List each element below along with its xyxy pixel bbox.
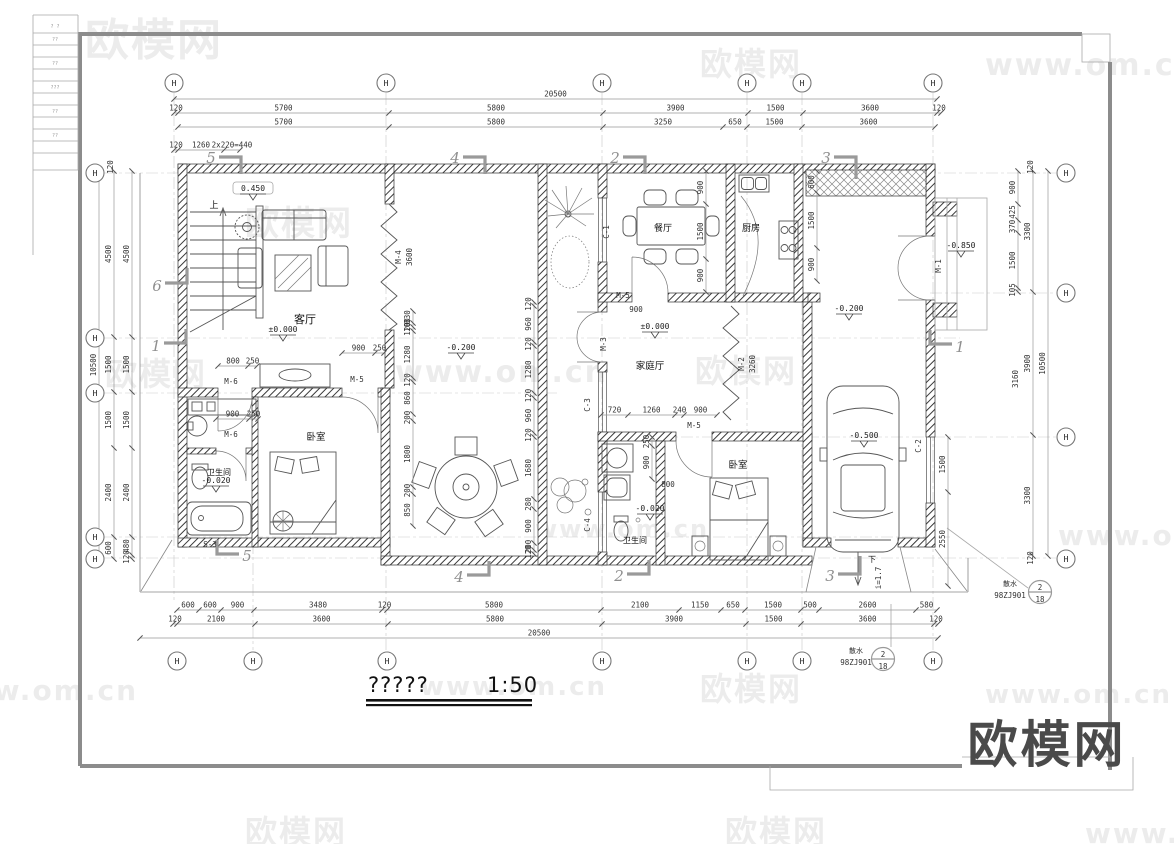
pillow [300, 457, 319, 474]
dimension-text: 900 [231, 601, 245, 610]
dimension-text: 120 [378, 601, 392, 610]
dimension-text: 250 [373, 344, 387, 353]
dimension-text: 900 [807, 257, 816, 271]
dimension-text: 650 [728, 118, 742, 127]
dimension-text: 10500 [1038, 352, 1047, 375]
label-text: 散水 [1003, 579, 1017, 588]
pillow [712, 481, 732, 499]
chair [676, 249, 698, 264]
dimension-text: 1500 [104, 410, 113, 429]
label-text: 120 [1026, 160, 1035, 174]
axis-bubble-label: H [745, 79, 750, 88]
label-text: M-1 [934, 259, 943, 273]
level-value: -0.200 [835, 304, 864, 313]
dimension-text: 20500 [544, 90, 567, 99]
axis-bubble-label: H [1064, 289, 1069, 298]
dimension-text: 900 [642, 455, 651, 469]
label-text: S-3 [203, 540, 217, 549]
dimension-text: 370 [1008, 219, 1017, 233]
dimension-text: 3300 [1023, 486, 1032, 505]
dimension-text: 1260 [192, 141, 211, 150]
axis-bubble-label: H [175, 657, 180, 666]
annotation-layer: 2050012057005800390015003600120570058003… [50, 24, 1075, 671]
label-text: ?? [52, 61, 58, 67]
label-text: ??? [50, 85, 59, 91]
label-text: 98ZJ901 [994, 591, 1026, 600]
dimension-text: 1500 [122, 410, 131, 429]
dimension-text: 3600 [861, 104, 880, 113]
axis-bubble-label: H [800, 657, 805, 666]
dimension-text: 860 [403, 391, 412, 405]
axis-bubble-label: H [1064, 555, 1069, 564]
label-text: M-5 [350, 375, 364, 384]
label-text: 下 [868, 555, 876, 564]
chair [706, 216, 719, 236]
dimension-text: 4500 [104, 244, 113, 263]
dimension-text: 3900 [666, 104, 685, 113]
nightstand [770, 536, 786, 556]
label-text: 3260 [748, 354, 757, 373]
dimension-text: 1500 [807, 211, 816, 230]
level-flag [836, 314, 862, 320]
axis-bubble-label: H [800, 79, 805, 88]
label-text: 18 [878, 662, 888, 671]
level-value: -0.500 [850, 431, 879, 440]
label-text: 餐厅 [654, 222, 672, 234]
level-value: ±0.000 [641, 322, 670, 331]
label-text: 2 [881, 650, 886, 659]
label-text: 卧室 [306, 431, 325, 443]
door-m5-dining [632, 257, 668, 293]
dimension-text: 120 [929, 615, 943, 624]
dimension-text: 120 [524, 297, 533, 311]
porch-pier [933, 202, 957, 216]
watermark-text: www.om.cn [985, 48, 1174, 83]
dimension-text: 1800 [403, 444, 412, 463]
svg-text:3: 3 [825, 567, 835, 585]
dimension-text: 650 [726, 601, 740, 610]
label-text: M-5 [687, 421, 701, 430]
dimension-text: 1500 [104, 355, 113, 374]
level-value: -0.020 [202, 476, 231, 485]
dimension-text: 250 [642, 434, 651, 448]
dimension-text: 600 [104, 541, 113, 555]
dimension-text: 1150 [691, 601, 710, 610]
axis-bubble-label: H [93, 555, 98, 564]
dimension-text: 1680 [524, 458, 533, 477]
level-value: -0.200 [447, 343, 476, 352]
level-flag [948, 251, 974, 257]
floor-plan-canvas: 欧模网欧模网www.om.cn欧模网欧模网www.om.cn欧模网www.om.… [0, 0, 1174, 844]
axis-bubble-label: H [251, 657, 256, 666]
kitchen-furniture [739, 175, 798, 296]
watermark-text: 欧模网 [725, 813, 827, 844]
dimension-text: 5800 [485, 601, 504, 610]
mirror [899, 448, 906, 461]
chair [623, 216, 636, 236]
label-text: C-3 [583, 398, 592, 412]
section-marker: 3 [825, 556, 860, 585]
dimension-text: 1500 [766, 104, 785, 113]
dimension-text: 20500 [528, 629, 551, 638]
dimension-text: 900 [226, 410, 240, 419]
stool [427, 507, 455, 534]
stool [455, 437, 477, 455]
axis-bubble-label: H [600, 657, 605, 666]
label-text: 2 [1038, 583, 1043, 592]
dimension-text: 2600 [858, 601, 877, 610]
dimension-text: 3600 [859, 118, 878, 127]
axis-bubble-label: H [931, 79, 936, 88]
basin [187, 416, 207, 436]
label-text: i=1.7 [874, 567, 883, 590]
label-text: 120 [106, 160, 115, 174]
axis-bubble-label: H [1064, 169, 1069, 178]
dimension-text: 800 [226, 357, 240, 366]
label-text: 98ZJ901 [840, 658, 872, 667]
folding-door-m4 [381, 204, 397, 330]
tv-cabinet [260, 364, 330, 387]
dimension-text: 5700 [274, 118, 293, 127]
dimension-text: 105 [1008, 283, 1017, 297]
plants [545, 186, 594, 515]
label-text: M-3 [599, 337, 608, 351]
dimension-text: 5800 [487, 118, 506, 127]
dimension-text: 240 [673, 406, 687, 415]
label-text: 900 [629, 305, 643, 314]
chair [644, 190, 666, 205]
dimension-text: 600 [807, 175, 816, 189]
label-text: M-6 [224, 430, 238, 439]
label-text: 卫生间 [623, 535, 647, 545]
label-text: ?? [52, 133, 58, 139]
cad-drawing-page: 欧模网欧模网www.om.cn欧模网欧模网www.om.cn欧模网www.om.… [0, 0, 1174, 844]
watermark-text: www.om.cn [985, 680, 1172, 710]
dimension-text: 4500 [122, 244, 131, 263]
dimension-text: 3900 [1023, 354, 1032, 373]
label-text: C-2 [914, 439, 923, 453]
label-text: ?? [52, 109, 58, 115]
watermark-text: 欧模网 [695, 352, 797, 390]
dimension-text: 900 [1008, 180, 1017, 194]
dimension-text: 2100 [631, 601, 650, 610]
dimension-text: 2550 [938, 529, 947, 548]
dimension-text: 120 [169, 104, 183, 113]
watermark-text: 欧模网 [105, 355, 207, 393]
label-text: C-4 [583, 518, 592, 532]
label-text: 散水 [849, 646, 863, 655]
dimension-text: 5800 [486, 615, 505, 624]
dimension-text: 500 [803, 601, 817, 610]
dimension-text: 900 [696, 180, 705, 194]
watermark-text: 欧模网 [245, 813, 347, 844]
tv [279, 369, 311, 381]
door-m5-bedroom [676, 441, 712, 477]
level-value: -0.020 [636, 504, 665, 513]
dimension-text: 1500 [696, 222, 705, 241]
dimension-text: 200 [403, 483, 412, 497]
dimension-text: 120 [403, 322, 412, 336]
stool [475, 509, 503, 536]
watermark-text: www.om.cn [1058, 519, 1174, 552]
bedroom-left-furniture [270, 452, 336, 534]
dimension-text: 900 [696, 268, 705, 282]
dimension-text: 120 [169, 141, 183, 150]
svg-text:5: 5 [242, 547, 252, 565]
pillow [735, 481, 755, 499]
axis-bubble-label: H [931, 657, 936, 666]
dimension-text: 120 [932, 104, 946, 113]
watermark-text: 欧模网 [700, 670, 802, 708]
dimension-text: 3900 [665, 615, 684, 624]
door-m5-living [342, 397, 378, 433]
washer [604, 475, 630, 500]
level-flag [851, 441, 877, 447]
label-text: 厨房 [742, 222, 760, 234]
label-text: 3600 [405, 247, 414, 266]
dimension-text: 1280 [403, 345, 412, 364]
axis-bubble-label: H [1064, 433, 1069, 442]
level-value: ±0.000 [269, 325, 298, 334]
dimension-text: 250 [247, 410, 261, 419]
watermark-text: 欧模网 [85, 15, 223, 66]
dimension-text: 10500 [89, 353, 98, 376]
label-text: 3160 [1011, 369, 1020, 388]
dimension-text: 120 [524, 337, 533, 351]
dimension-text: 2100 [207, 615, 226, 624]
dimension-text: 580 [920, 601, 934, 610]
basin [607, 448, 627, 468]
title-underline-2 [366, 704, 532, 706]
label-text: ? ? [50, 24, 59, 30]
dimension-text: 5800 [487, 104, 506, 113]
watermark-text: www.om.cn [0, 674, 138, 707]
plan-title: ????? [368, 673, 429, 697]
dimension-text: 720 [608, 406, 622, 415]
armchair [318, 246, 348, 286]
svg-text:6: 6 [152, 277, 162, 295]
level-value: 0.450 [241, 184, 265, 193]
axis-bubble-label: H [745, 657, 750, 666]
dimension-text: 120 [524, 388, 533, 402]
dimension-text: 1500 [765, 118, 784, 127]
svg-text:2: 2 [613, 567, 624, 585]
dimension-text: 600 [181, 601, 195, 610]
dimension-text: 3300 [1023, 222, 1032, 241]
axis-bubble-label: H [93, 169, 98, 178]
door-m1 [898, 236, 930, 300]
svg-text:4: 4 [449, 149, 460, 167]
label-text: M-6 [224, 377, 238, 386]
stool [494, 460, 518, 487]
dimension-text: 1500 [122, 355, 131, 374]
svg-text:5: 5 [206, 149, 216, 167]
level-value: -0.850 [947, 241, 976, 250]
svg-text:1: 1 [151, 337, 161, 355]
bed [710, 478, 768, 560]
courtyard-table [412, 437, 518, 537]
stool [412, 462, 436, 489]
label-text: 上 [209, 200, 218, 211]
site-logo: 欧模网 [968, 716, 1127, 774]
dimension-text: 850 [403, 503, 412, 517]
dimension-text: 900 [694, 406, 708, 415]
dimension-text: 120 [524, 545, 533, 559]
dimension-text: 425 [1008, 205, 1017, 219]
counter-curve [741, 196, 758, 296]
dimension-text: 1500 [764, 601, 783, 610]
dimension-text: 1500 [764, 615, 783, 624]
level-flag [642, 332, 668, 338]
dimension-text: 1260 [642, 406, 661, 415]
dimension-text: 960 [524, 408, 533, 422]
axis-bubble-label: H [93, 389, 98, 398]
title-underline [366, 699, 532, 702]
svg-text:3: 3 [821, 149, 831, 167]
dimension-text: 5700 [274, 104, 293, 113]
axis-bubble-label: H [600, 79, 605, 88]
dimension-text: 2400 [122, 483, 131, 502]
dimension-text: 2400 [104, 483, 113, 502]
dimension-text: 900 [524, 519, 533, 533]
axis-bubble-label: H [172, 79, 177, 88]
label-text: 客厅 [294, 312, 316, 326]
dimension-text: 1280 [524, 360, 533, 379]
dimension-text: 3250 [654, 118, 673, 127]
dimension-text: 3600 [312, 615, 331, 624]
planter-glass-band [806, 170, 926, 196]
dimension-text: 120 [122, 550, 131, 564]
axis-bubble-label: H [93, 533, 98, 542]
car [820, 386, 906, 552]
axis-bubble-label: H [384, 79, 389, 88]
level-flag [203, 486, 229, 492]
label-text: 18 [1035, 595, 1045, 604]
chair [676, 190, 698, 205]
plan-scale: 1:50 [487, 673, 538, 697]
dimension-text: 3600 [858, 615, 877, 624]
dimension-text: 1500 [938, 455, 947, 474]
dimension-text: 900 [352, 344, 366, 353]
svg-text:2: 2 [609, 149, 620, 167]
dimension-text: 120 [403, 373, 412, 387]
svg-text:4: 4 [453, 568, 464, 586]
level-flag [240, 194, 266, 200]
watermark-text: www.om.cn [395, 355, 608, 390]
dimension-text: 600 [203, 601, 217, 610]
dimension-text: 120 [168, 615, 182, 624]
dimension-text: 3480 [309, 601, 328, 610]
label-text: M-2 [737, 357, 746, 371]
dimension-text: 120 [524, 428, 533, 442]
porch-pier [933, 303, 957, 317]
svg-text:1: 1 [955, 338, 965, 356]
label-text: 家庭厅 [636, 360, 665, 372]
dimension-text: 2x220=440 [212, 141, 253, 150]
label-text: C-1 [602, 225, 611, 239]
mirror [820, 448, 827, 461]
label-text: 卧室 [728, 459, 747, 471]
label-text: 800 [661, 480, 675, 489]
label-text: M-5 [616, 291, 630, 300]
dimension-text: 1500 [1008, 251, 1017, 270]
dimension-text: 960 [524, 317, 533, 331]
watermark-text: www.om.cn [1085, 817, 1174, 844]
dimension-text: 200 [403, 410, 412, 424]
label-text: 120 [1026, 551, 1035, 565]
chair [644, 249, 666, 264]
dimension-text: 250 [246, 357, 260, 366]
axis-bubble-label: H [93, 334, 98, 343]
pillow [275, 456, 295, 473]
axis-bubble-label: H [385, 657, 390, 666]
label-text: ?? [52, 37, 58, 43]
dimension-text: 280 [524, 497, 533, 511]
label-text: M-4 [394, 250, 403, 264]
